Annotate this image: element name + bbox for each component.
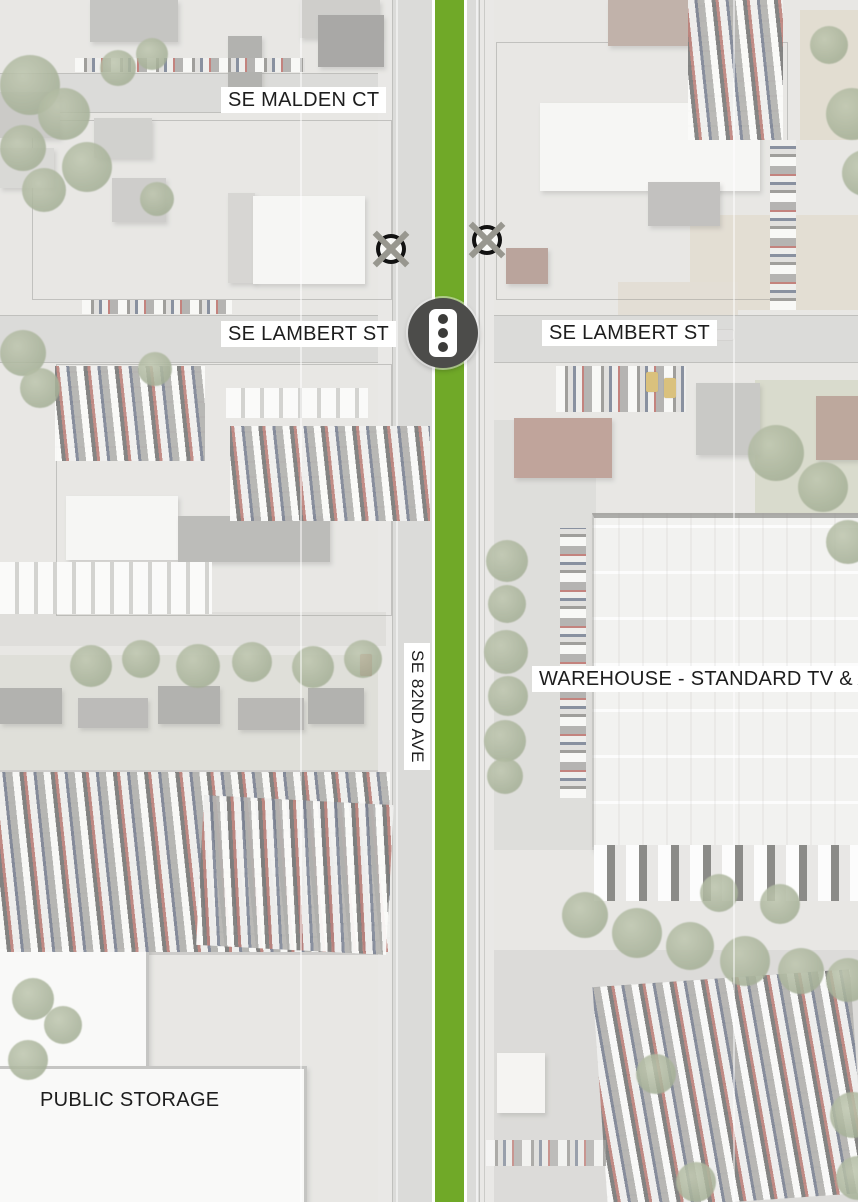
crossed-out-circle-icon (369, 227, 413, 271)
building (228, 193, 255, 283)
route-highlight-82nd-ave (432, 0, 467, 1202)
tree (486, 540, 528, 582)
parked-cars (486, 1140, 606, 1166)
junkyard-lot (196, 795, 394, 955)
tree (138, 352, 172, 386)
building-label-warehouse: WAREHOUSE - STANDARD TV & APPLIANCE (532, 666, 858, 692)
tree (488, 676, 528, 716)
tree (636, 1054, 676, 1094)
building (90, 0, 178, 42)
building (178, 516, 330, 562)
car-lot (688, 0, 783, 140)
tree (122, 640, 160, 678)
mobile-home (238, 698, 304, 730)
car-lot (55, 366, 205, 461)
tree (176, 644, 220, 688)
tree (760, 884, 800, 924)
tree (666, 922, 714, 970)
car (646, 372, 658, 392)
tree (344, 640, 382, 678)
tree (810, 26, 848, 64)
building (318, 15, 384, 67)
imagery-seam (300, 0, 302, 1202)
tree (488, 585, 526, 623)
signal-light (438, 342, 448, 352)
tree (22, 168, 66, 212)
street-label-lambert-st-east: SE LAMBERT ST (542, 320, 717, 346)
car (664, 378, 676, 398)
tree (232, 642, 272, 682)
tree (676, 1162, 716, 1202)
tree (487, 758, 523, 794)
car (716, 330, 734, 340)
tree (20, 368, 60, 408)
signal-lamp-housing (429, 309, 457, 357)
curb-line (484, 0, 485, 1202)
imagery-seam (733, 0, 735, 1202)
tree (100, 50, 136, 86)
parked-cars (560, 528, 586, 798)
aerial-map: SE MALDEN CT SE LAMBERT ST SE LAMBERT ST… (0, 0, 858, 1202)
building (816, 396, 858, 460)
tree (484, 630, 528, 674)
tree (8, 1040, 48, 1080)
building (514, 418, 612, 478)
tree (748, 425, 804, 481)
driveway (0, 612, 386, 646)
tree (612, 908, 662, 958)
lane-line (396, 0, 398, 1202)
tree (140, 182, 174, 216)
building-label-public-storage: PUBLIC STORAGE (40, 1087, 219, 1113)
tree (0, 125, 46, 171)
traffic-signal-icon (408, 298, 478, 368)
tree (778, 948, 824, 994)
mobile-home (0, 688, 62, 724)
trailer-row (0, 562, 212, 614)
building (253, 196, 365, 284)
car-lot (593, 969, 858, 1202)
mobile-home (78, 698, 148, 728)
building (648, 182, 720, 226)
tree (62, 142, 112, 192)
building (506, 248, 548, 284)
street-label-lambert-st-west: SE LAMBERT ST (221, 321, 396, 347)
tree (38, 88, 90, 140)
building-shed (497, 1053, 545, 1113)
signal-light (438, 328, 448, 338)
building (66, 496, 178, 560)
mobile-home (308, 688, 364, 724)
tree (484, 720, 526, 762)
tree (70, 645, 112, 687)
signal-light (438, 314, 448, 324)
tree (562, 892, 608, 938)
tree (292, 646, 334, 688)
tree (136, 38, 168, 70)
parked-cars (770, 140, 796, 310)
lane-line (476, 0, 478, 1202)
parked-cars (82, 300, 232, 314)
trailer-row (226, 388, 368, 418)
tree (44, 1006, 82, 1044)
crossed-out-circle-icon (465, 218, 509, 262)
tree (798, 462, 848, 512)
street-label-malden-ct: SE MALDEN CT (221, 87, 386, 113)
tree (720, 936, 770, 986)
building (608, 0, 700, 46)
mobile-home (158, 686, 220, 724)
tree (842, 150, 858, 196)
car-lot (230, 426, 430, 521)
street-label-82nd-ave: SE 82ND AVE (404, 643, 430, 770)
